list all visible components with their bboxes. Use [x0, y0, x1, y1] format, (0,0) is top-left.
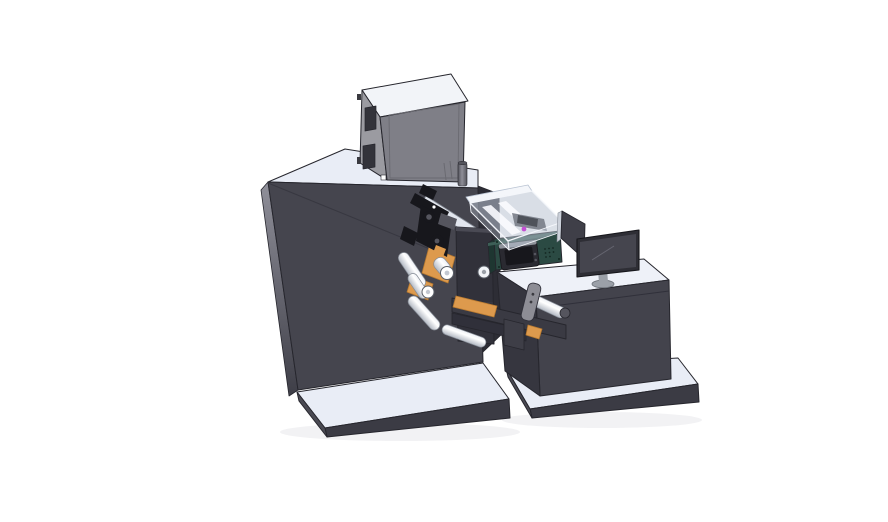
screw-tl	[496, 241, 498, 243]
roller-end-hub-2	[426, 290, 430, 294]
exhaust-pipe-cap	[458, 161, 467, 165]
exhaust-pipe	[458, 163, 467, 186]
printer-hinge-lower	[357, 157, 361, 164]
cad-viewport	[0, 0, 888, 522]
cover-magenta-cartridge	[522, 227, 527, 232]
vent-dot	[545, 252, 547, 254]
arm-bracket	[504, 319, 524, 350]
screw-br	[558, 258, 560, 260]
printer-window-upper	[365, 106, 376, 131]
vent-dot	[544, 248, 546, 250]
arm-roller-end	[560, 308, 570, 318]
desk-front	[536, 280, 671, 396]
mech-hub-large-center	[426, 214, 432, 220]
machine-render	[0, 0, 888, 522]
mech-white-pin	[432, 205, 435, 208]
roller-end-hub-1	[445, 271, 450, 276]
screw-bl	[498, 266, 500, 268]
printer-hinge-upper	[357, 94, 361, 100]
vent-dot	[553, 251, 555, 253]
vent-dot	[548, 248, 550, 250]
vent-dot	[545, 256, 547, 258]
printer-window-lower	[363, 144, 375, 169]
vent-dot	[549, 256, 551, 258]
vent-dot	[552, 247, 554, 249]
printer-corner-button	[381, 175, 386, 180]
mech-hub-small-center	[435, 239, 440, 244]
plate-shaft-hub	[482, 270, 486, 274]
printer-module	[357, 74, 468, 186]
vent-dot	[549, 252, 551, 254]
